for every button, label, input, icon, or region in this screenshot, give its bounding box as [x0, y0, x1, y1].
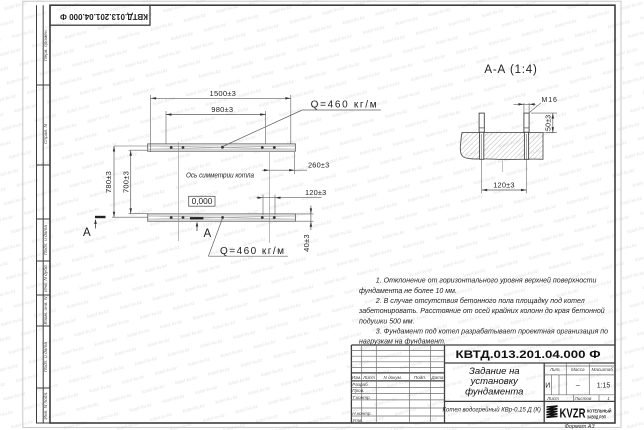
svg-text:подушки 500 мм.: подушки 500 мм. — [359, 317, 415, 325]
svg-text:0,000: 0,000 — [192, 196, 213, 206]
svg-text:Т.контр.: Т.контр. — [352, 395, 371, 400]
svg-text:Лист: Лист — [362, 375, 375, 380]
svg-text:Подп. и дата: Подп. и дата — [43, 225, 49, 255]
svg-text:Взам. инв. N: Взам. инв. N — [43, 296, 49, 324]
svg-text:А: А — [203, 228, 211, 240]
svg-text:фундамента: фундамента — [465, 387, 523, 398]
svg-text:Q=460 кг/м: Q=460 кг/м — [311, 100, 377, 111]
svg-text:Масштаб: Масштаб — [591, 367, 613, 372]
svg-text:Пров.: Пров. — [352, 388, 364, 393]
svg-text:Формат А3: Формат А3 — [564, 424, 595, 430]
svg-text:КОТЕЛЬНЫЙ: КОТЕЛЬНЫЙ — [587, 408, 612, 413]
svg-text:Листов: Листов — [574, 396, 592, 401]
svg-text:Перв. примен.: Перв. примен. — [43, 29, 49, 61]
svg-text:40±3: 40±3 — [302, 234, 311, 252]
svg-text:Q=460 кг/м: Q=460 кг/м — [220, 246, 284, 257]
svg-text:Лист: Лист — [546, 396, 559, 401]
svg-text:1. Отклонение от горизонтально: 1. Отклонение от горизонтального уровня … — [376, 277, 597, 285]
svg-text:N докум.: N докум. — [384, 375, 403, 380]
svg-text:260±3: 260±3 — [308, 161, 330, 170]
svg-text:1:15: 1:15 — [597, 383, 611, 390]
svg-text:Н.контр.: Н.контр. — [352, 411, 371, 416]
svg-text:фундамента не более 10 мм.: фундамента не более 10 мм. — [359, 287, 457, 295]
svg-text:3. Фундамент под котел разраба: 3. Фундамент под котел разрабатывает про… — [376, 327, 608, 335]
svg-text:забетонировать. Расстояние от: забетонировать. Расстояние от осей крайн… — [358, 307, 605, 315]
svg-text:Инв. N подл.: Инв. N подл. — [43, 391, 49, 419]
svg-text:Изм.: Изм. — [352, 375, 362, 380]
svg-text:КВТД.013.201.04.000 Ф: КВТД.013.201.04.000 Ф — [456, 349, 601, 361]
svg-text:KVZR: KVZR — [560, 406, 586, 420]
svg-text:2. В случае отсутствия бетонно: 2. В случае отсутствия бетонного пола пл… — [375, 297, 585, 305]
svg-text:120±3: 120±3 — [493, 180, 515, 189]
svg-text:Ось симметрии котла: Ось симметрии котла — [186, 171, 254, 179]
svg-text:КВТД.013.201.04.000 Ф: КВТД.013.201.04.000 Ф — [59, 12, 148, 22]
svg-text:120±3: 120±3 — [305, 188, 327, 197]
svg-text:980±3: 980±3 — [211, 105, 233, 114]
svg-text:M16: M16 — [542, 97, 558, 104]
svg-text:И: И — [545, 383, 550, 390]
svg-text:Разраб.: Разраб. — [352, 382, 369, 387]
svg-text:700±3: 700±3 — [121, 171, 130, 193]
svg-text:–: – — [576, 382, 580, 389]
svg-text:Дата: Дата — [430, 375, 444, 380]
svg-text:Подп.: Подп. — [414, 375, 426, 380]
svg-text:Справ. N: Справ. N — [43, 123, 49, 144]
svg-text:Масса: Масса — [571, 367, 585, 372]
svg-text:Инв. N дубл.: Инв. N дубл. — [43, 264, 49, 292]
svg-text:1500±3: 1500±3 — [210, 89, 236, 98]
svg-text:780±3: 780±3 — [104, 171, 113, 193]
svg-text:1: 1 — [607, 396, 610, 401]
svg-text:50±3: 50±3 — [545, 115, 552, 131]
svg-text:Подп. и дата: Подп. и дата — [43, 342, 49, 372]
svg-text:Котел водогрейный КВр-0,15 Д (: Котел водогрейный КВр-0,15 Д (К) — [443, 407, 541, 414]
svg-text:А-А (1:4): А-А (1:4) — [484, 64, 537, 76]
svg-text:Утв.: Утв. — [352, 418, 362, 423]
svg-text:Лит.: Лит. — [549, 367, 561, 372]
svg-text:А: А — [83, 227, 91, 239]
svg-text:ЗАВОД РЭП: ЗАВОД РЭП — [587, 415, 606, 420]
